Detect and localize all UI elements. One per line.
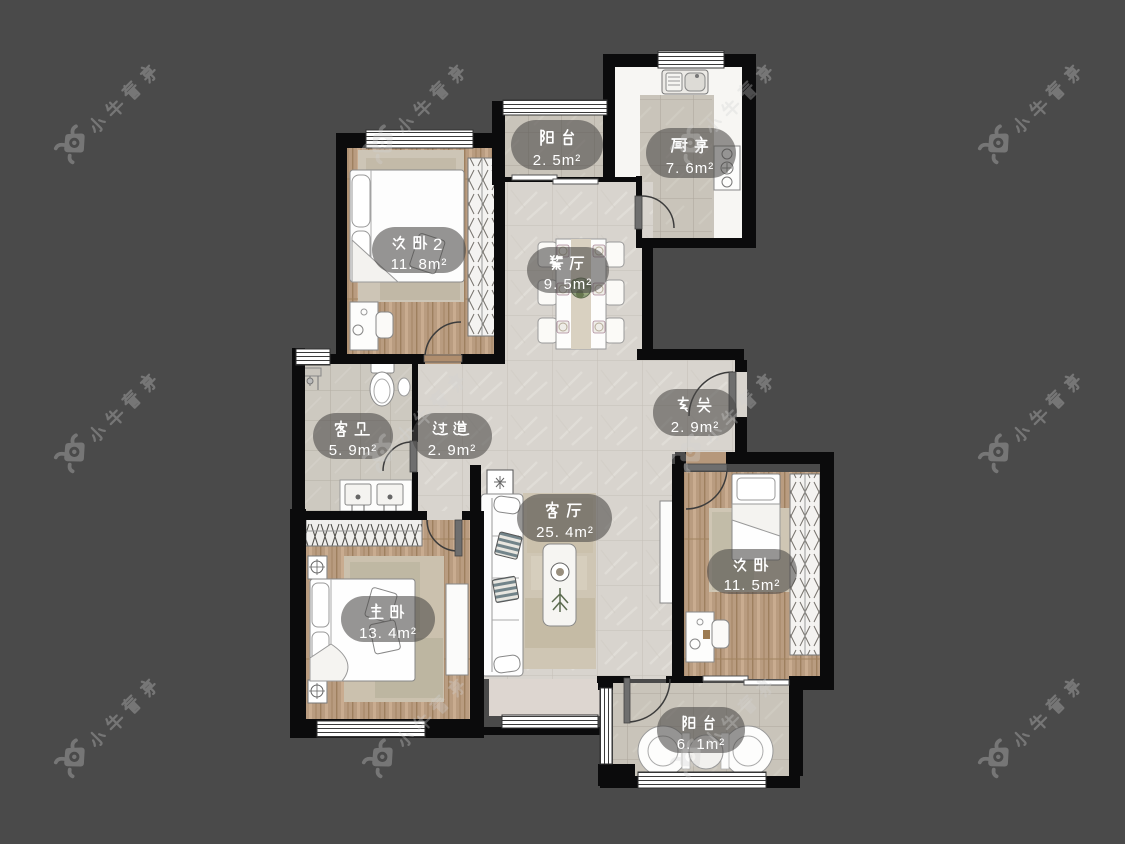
svg-text:2. 5m²: 2. 5m² (533, 152, 582, 169)
svg-text:25. 4m²: 25. 4m² (536, 524, 594, 541)
svg-text:13. 4m²: 13. 4m² (359, 625, 417, 642)
svg-text:9. 5m²: 9. 5m² (544, 276, 593, 293)
svg-text:11. 5m²: 11. 5m² (724, 577, 781, 594)
svg-text:2: 2 (433, 235, 442, 254)
svg-text:11. 8m²: 11. 8m² (391, 256, 448, 273)
svg-text:5. 9m²: 5. 9m² (329, 442, 378, 459)
svg-text:2. 9m²: 2. 9m² (428, 442, 477, 459)
